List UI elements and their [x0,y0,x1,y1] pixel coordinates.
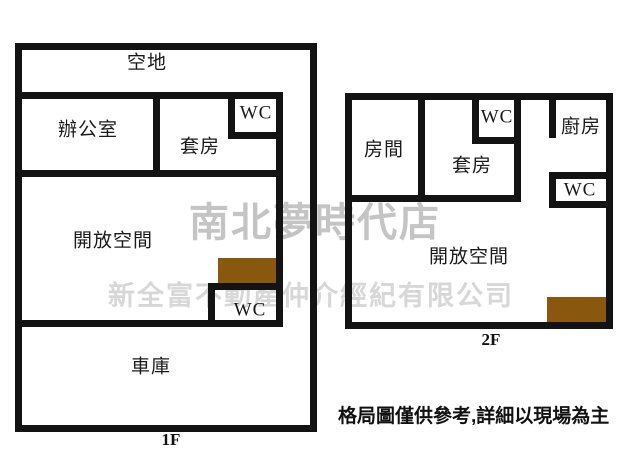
wall-below-rooms-2f [352,195,521,202]
wall-wc-bottom [228,132,283,139]
wall-office-suite-divider [153,92,160,177]
wall-suite-right [514,100,521,202]
floor-label-2f: 2F [482,330,501,350]
room-label-suite-2f: 套房 [452,157,492,176]
wall-wc2-top [208,283,283,290]
room-label-garage: 車庫 [131,358,171,377]
floorplan-2f: 房間 套房 WC 廚房 WC 開放空間 [345,93,613,329]
wall-garage-top [22,320,283,327]
stairs-block-2f [547,297,606,322]
wall-wcright-bottom [549,201,606,208]
disclaimer-text: 格局圖僅供參考,詳細以現場為主 [338,401,609,428]
room-label-room-2f: 房間 [364,141,404,160]
wall-wcright-top [549,172,606,179]
stairs-block-1f [218,258,276,283]
room-label-suite-1f: 套房 [180,138,220,157]
room-label-wc-right-2f: WC [564,181,597,200]
room-label-yard: 空地 [127,54,167,73]
wall-room-suite-divider [418,100,425,202]
room-label-wc-top-1f: WC [240,104,273,123]
room-label-kitchen: 廚房 [561,118,601,137]
room-label-office: 辦公室 [58,121,118,140]
wall-rooms-right [276,92,283,327]
wall-below-office-suite [22,170,283,177]
wall-kitchen-left [549,100,556,138]
room-label-open-space-1f: 開放空間 [73,232,153,251]
room-label-wc-top-2f: WC [481,108,514,127]
floorplan-image: { "floorplan_1f": { "floor_label": "1F",… [0,0,640,457]
room-label-wc-bottom-1f: WC [234,301,267,320]
floor-label-1f: 1F [162,430,181,450]
room-label-open-space-2f: 開放空間 [429,248,509,267]
floorplan-1f: 空地 辦公室 套房 WC 開放空間 WC 車庫 [15,43,317,432]
